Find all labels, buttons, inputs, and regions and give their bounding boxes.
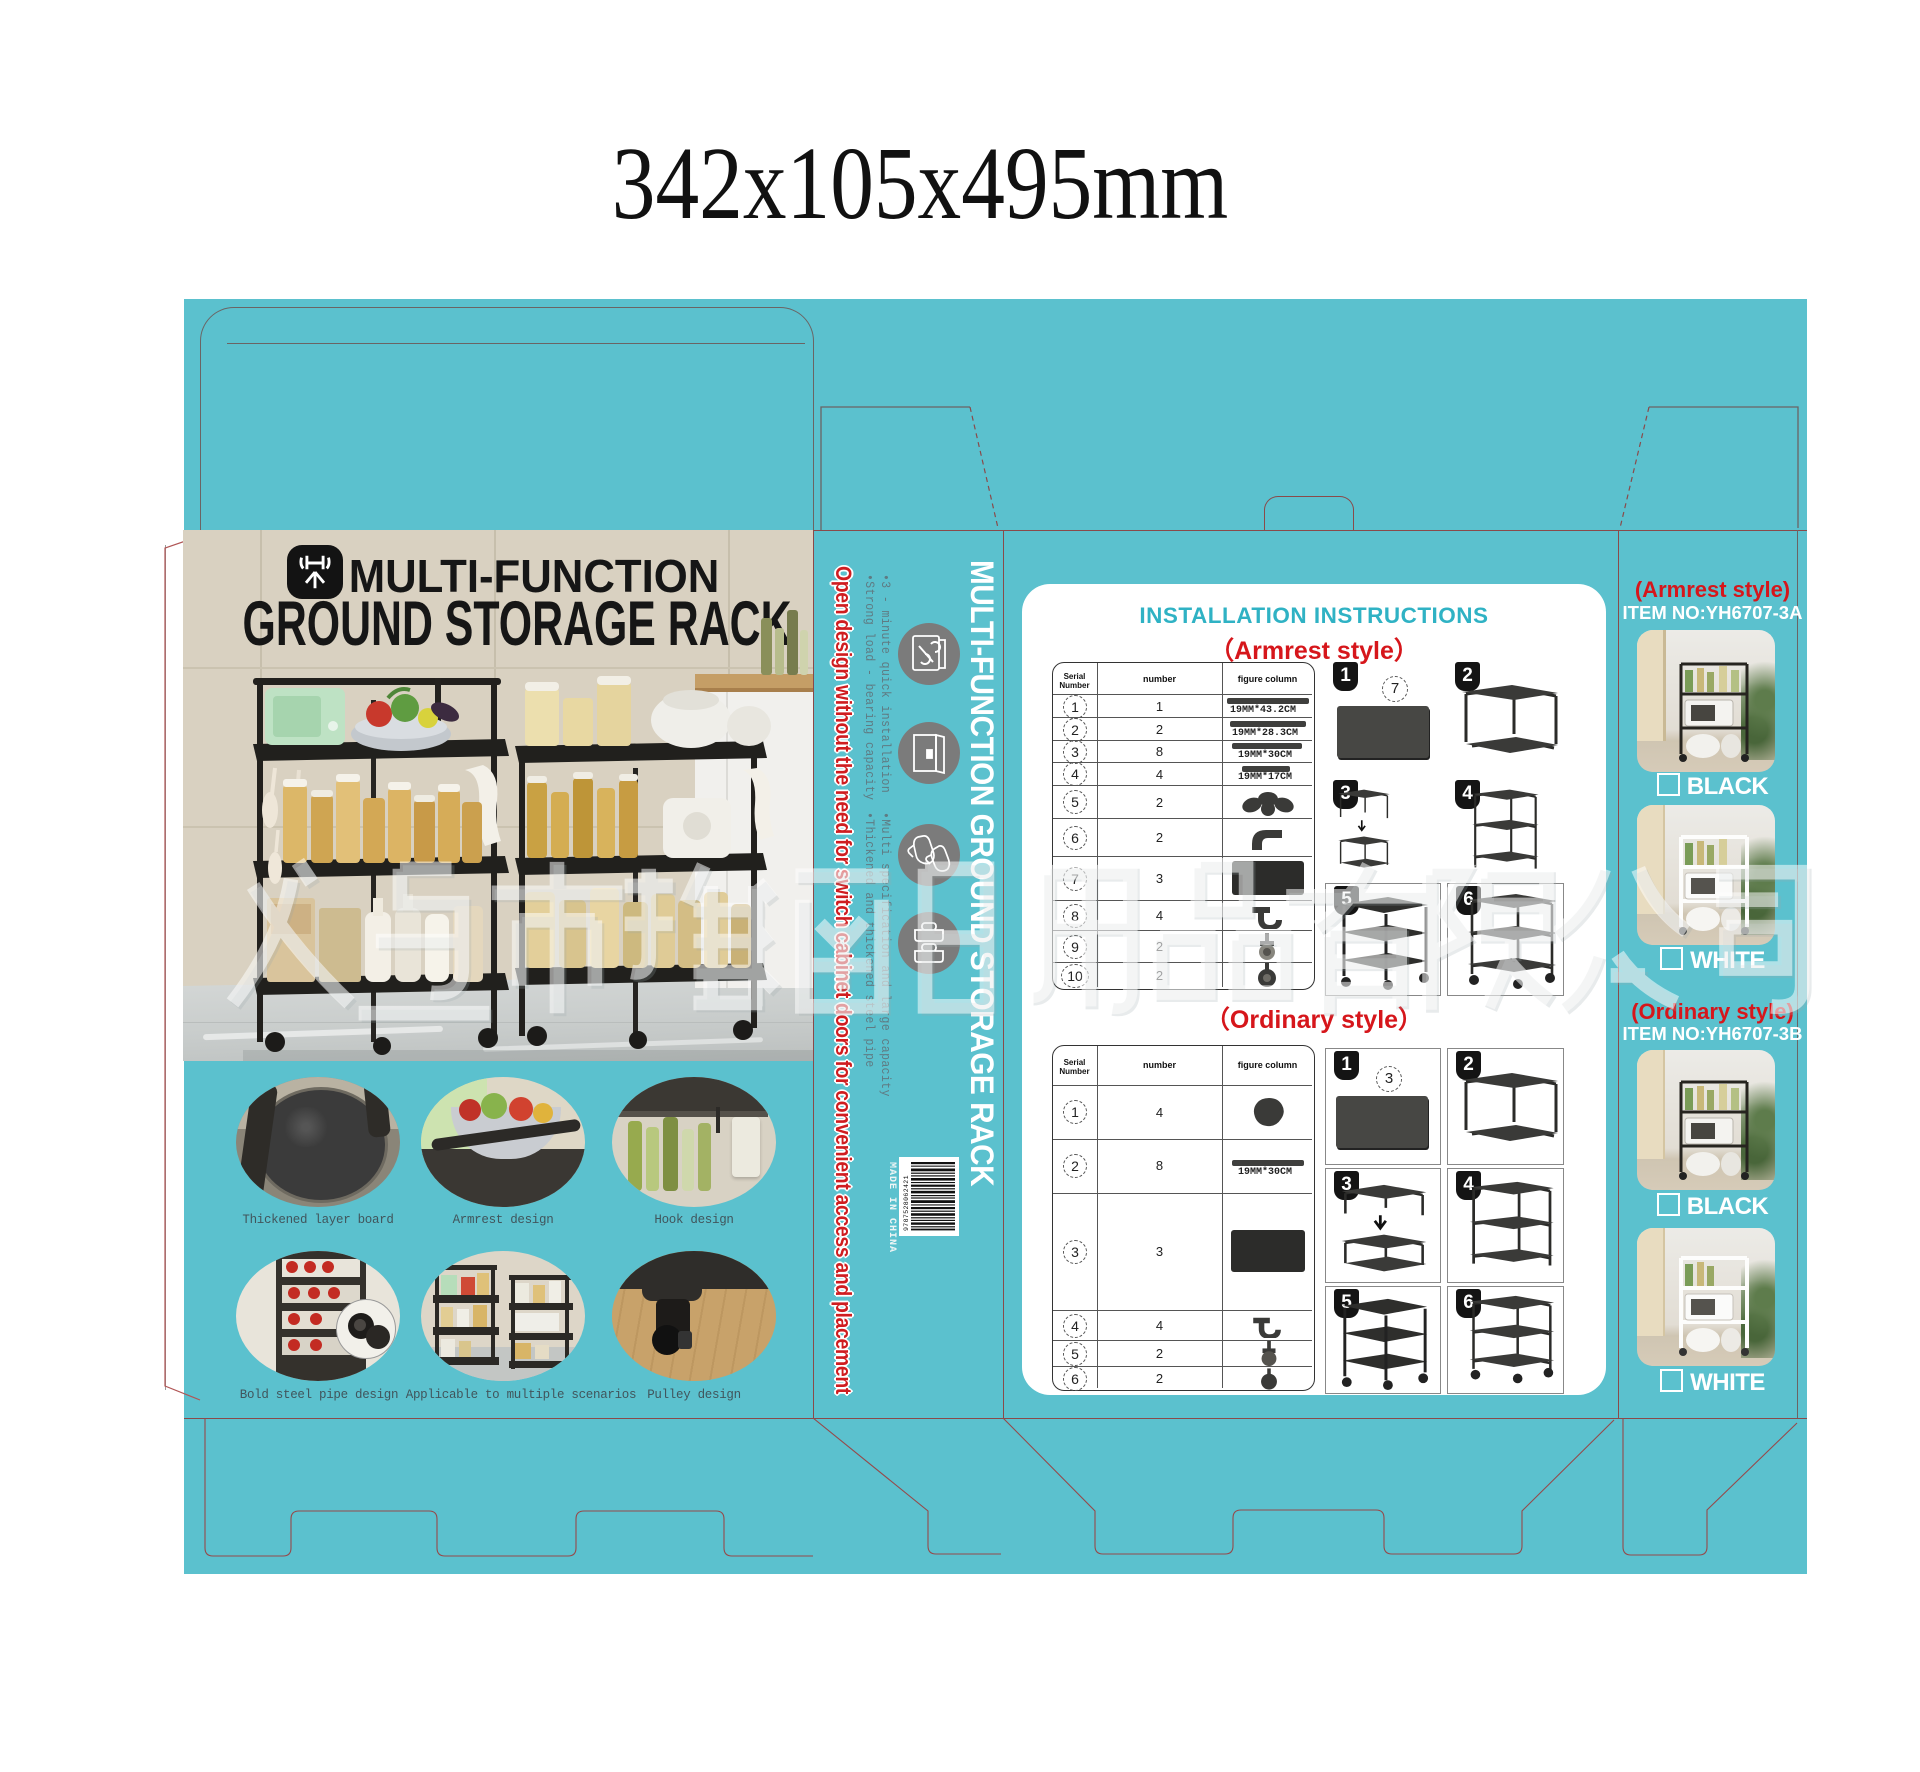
svg-text:9787528062421: 9787528062421 (903, 1175, 910, 1231)
